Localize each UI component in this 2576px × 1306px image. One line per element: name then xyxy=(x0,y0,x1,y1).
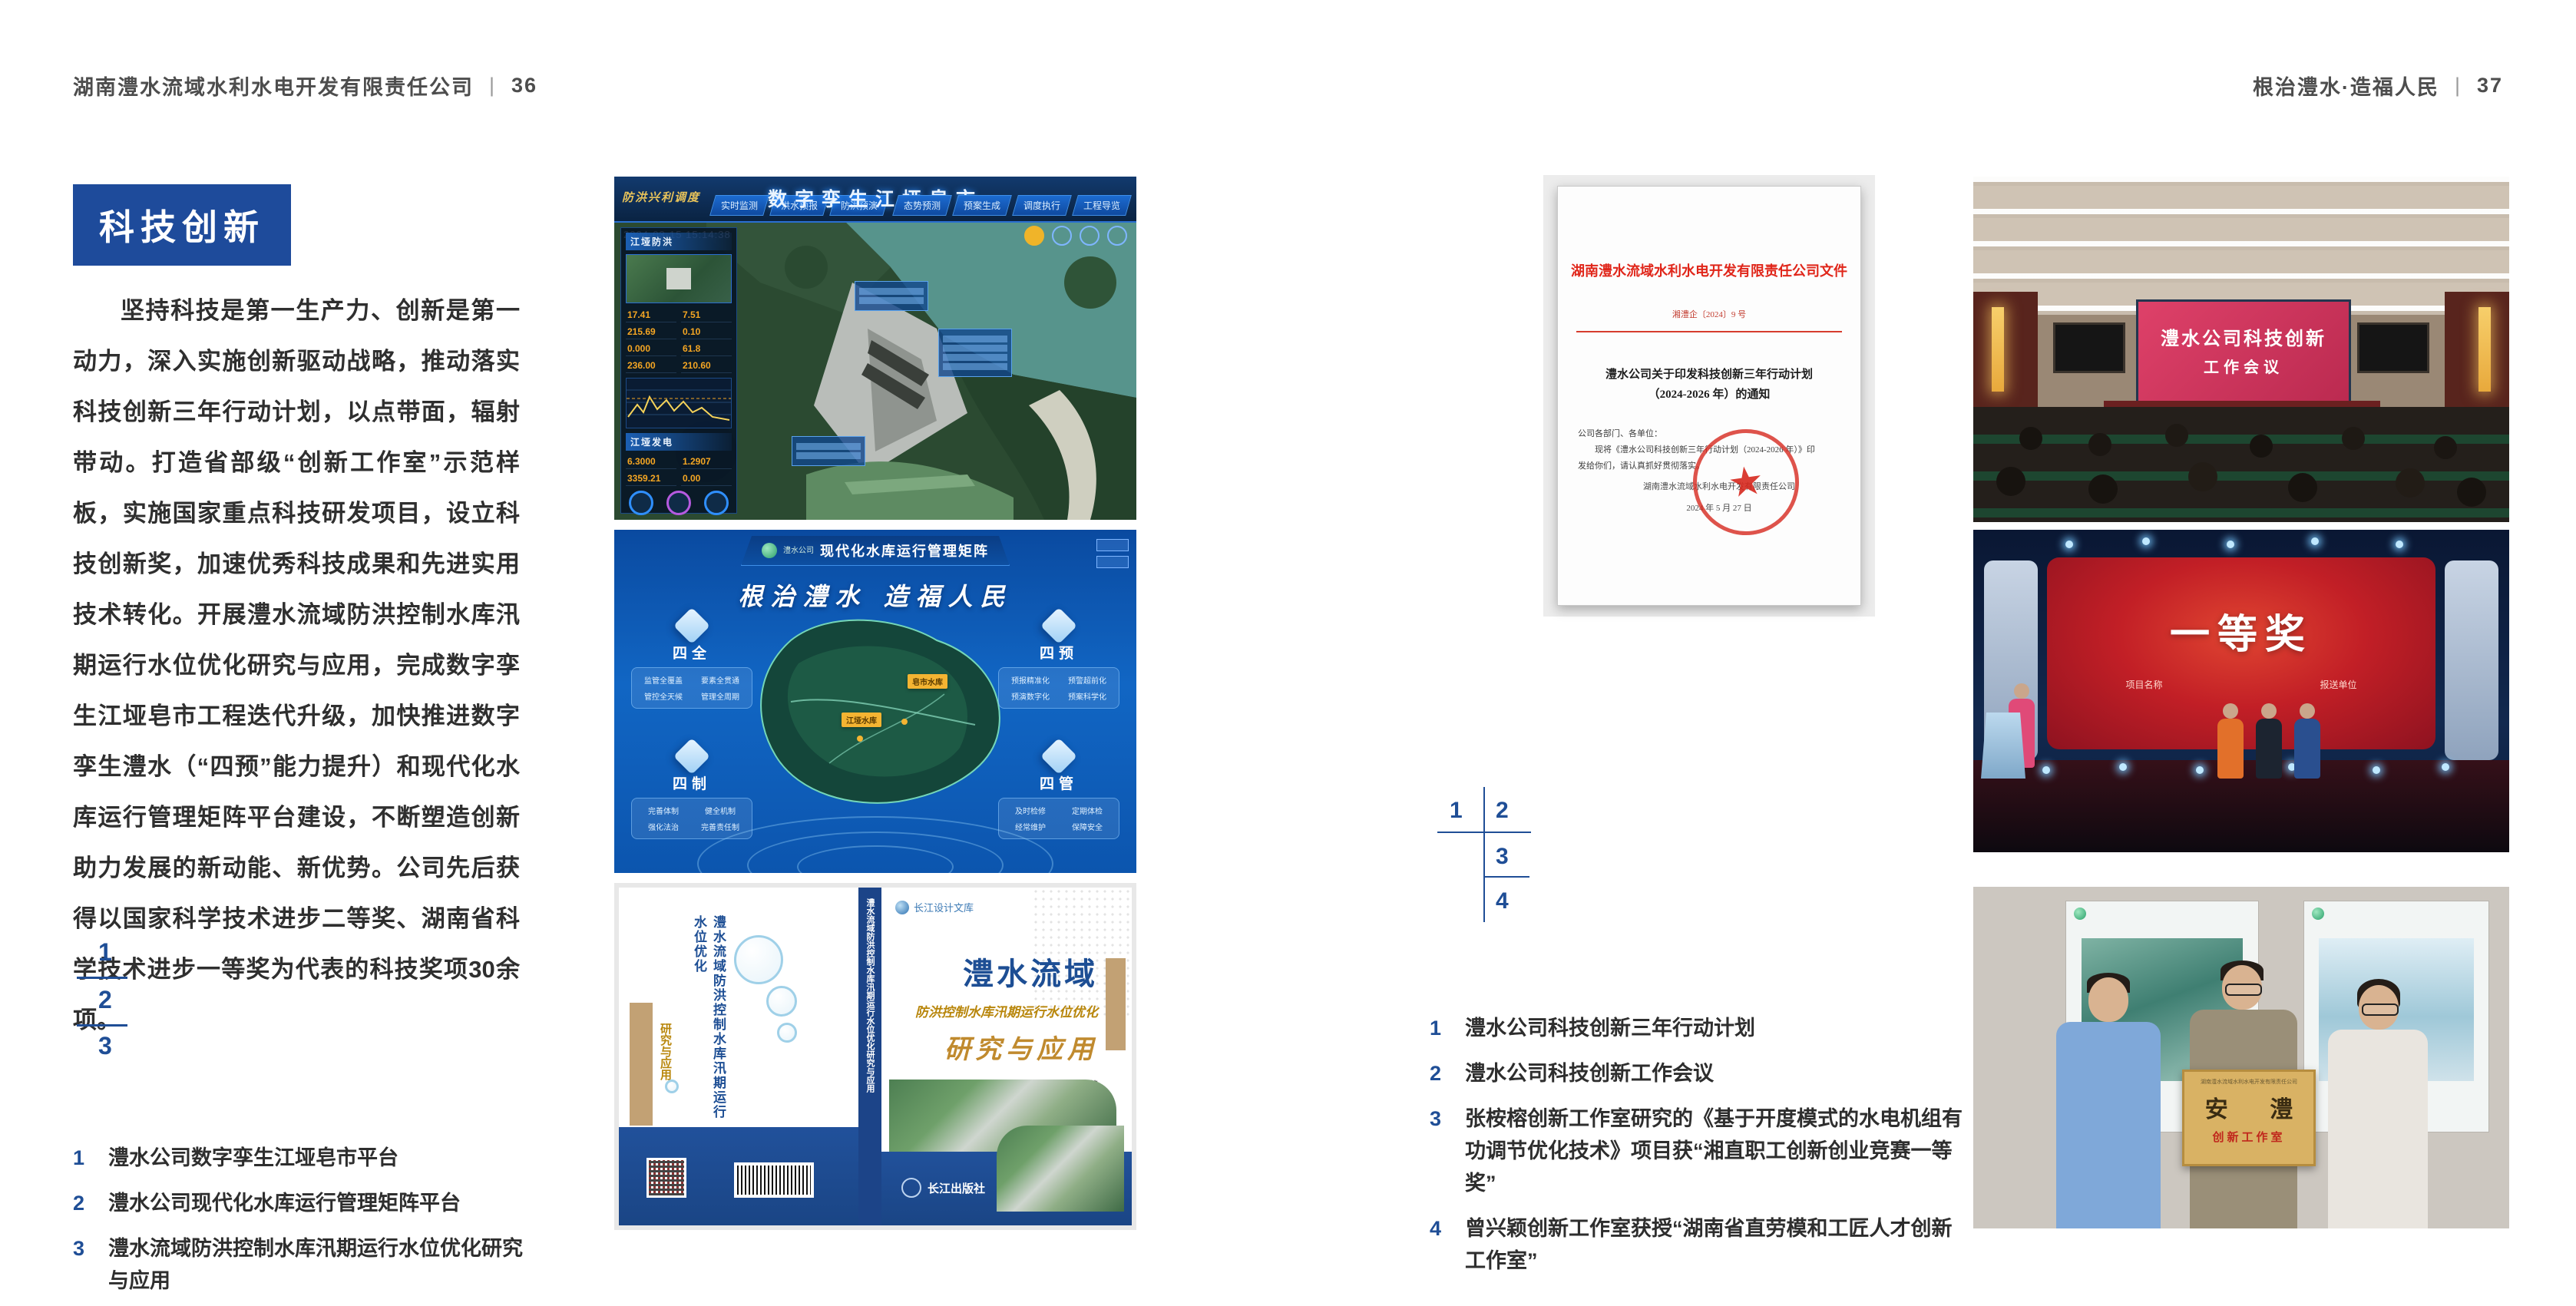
caption-row: 3 张桉榕创新工作室研究的《基于开度模式的水电机组有功调节优化技术》项目获“湘直… xyxy=(1430,1103,1972,1199)
stat-value: 210.60 xyxy=(681,359,732,373)
bubble-graphic xyxy=(665,1080,679,1093)
platform-header: 澧水公司 现代化水库运行管理矩阵 xyxy=(741,536,1010,566)
bubble-graphic xyxy=(766,986,797,1017)
group-item: 及时检修 xyxy=(1004,805,1057,816)
document-title: 湖南澧水流域水利水电开发有限责任公司文件 xyxy=(1558,260,1860,280)
subject-line: 澧水公司关于印发科技创新三年行动计划 xyxy=(1558,365,1860,385)
stage-spotlight xyxy=(2142,537,2150,545)
subject-line: （2024-2026 年）的通知 xyxy=(1558,385,1860,405)
photo-award-ceremony: 一等奖 项目名称 报送单位 xyxy=(1973,530,2509,852)
floor-light xyxy=(2042,766,2050,774)
figure-number: 2 xyxy=(98,986,112,1014)
audience-area xyxy=(1973,407,2509,522)
group-item: 管理全周期 xyxy=(693,690,747,702)
award-col-unit: 报送单位 xyxy=(2320,678,2356,691)
header-divider: | xyxy=(489,74,496,98)
book-back-cover: 研究与应用 澧水流域防洪控制水库汛期运行水位优化 xyxy=(619,888,858,1225)
poster-logo-icon xyxy=(2312,908,2324,920)
book-spine: 澧水流域防洪控制水库汛期运行水位优化研究与应用 xyxy=(858,888,881,1225)
stage-spotlight xyxy=(2311,537,2319,545)
figure-number: 1 xyxy=(98,938,112,967)
stat-value: 7.51 xyxy=(681,308,732,322)
awardee-blue xyxy=(2294,719,2320,779)
front-title-block: 澧水流域 防洪控制水库汛期运行水位优化 研究与应用 洪兴骏 沈坤民 鲁军 刘世军… xyxy=(898,949,1098,1091)
caption-number: 1 xyxy=(1430,1012,1441,1044)
caption-text: 张桉榕创新工作室研究的《基于开度模式的水电机组有功调节优化技术》项目获“湘直职工… xyxy=(1465,1107,1963,1195)
group-item: 完善体制 xyxy=(637,805,690,816)
award-title: 一等奖 xyxy=(2047,602,2435,660)
group-item: 预警超前化 xyxy=(1060,674,1114,686)
caption-row: 2 澧水公司科技创新工作会议 xyxy=(1430,1057,1972,1089)
caption-text: 澧水公司数字孪生江垭皂市平台 xyxy=(108,1146,398,1169)
locate-icon xyxy=(1080,226,1100,246)
droplet-icon xyxy=(673,607,710,644)
platform-button xyxy=(1096,539,1129,551)
tab-trend-forecast: 态势预测 xyxy=(892,195,952,216)
matrix-group-siquan: 四全 监管全覆盖 要素全贯通 管控全天候 管理全周期 xyxy=(631,613,752,709)
stat-value: 0.10 xyxy=(681,325,732,339)
platform-slogan: 根治澧水 造福人民 xyxy=(738,577,1012,613)
caption-row: 4 曾兴颖创新工作室获授“湖南省直劳模和工匠人才创新工作室” xyxy=(1430,1212,1972,1277)
platform-logo-text: 澧水公司 xyxy=(783,547,814,555)
stat-value: 236.00 xyxy=(626,359,676,373)
company-name: 湖南澧水流域水利水电开发有限责任公司 xyxy=(73,71,474,101)
gauge-icon xyxy=(666,491,691,515)
glasses-icon xyxy=(2225,984,2262,996)
wall-lamp xyxy=(1992,307,2004,392)
maintenance-icon xyxy=(1040,738,1077,775)
photo-studio-plaque: 湖南澧水流域水利水电开发有限责任公司 安 澧 创新工作室 xyxy=(1973,887,2509,1228)
dashboard-tabs-right: 态势预测 预案生成 调度执行 工程导览 xyxy=(895,195,1129,216)
data-callout xyxy=(792,436,865,466)
plaque-subtitle: 创新工作室 xyxy=(2184,1129,2313,1145)
water-level-chart xyxy=(626,378,732,428)
book-title-sub: 防洪控制水库汛期运行水位优化 xyxy=(898,1001,1098,1020)
slogan: 根治澧水·造福人民 xyxy=(2253,71,2439,101)
watershed-map xyxy=(745,610,1014,809)
index-divider xyxy=(77,977,127,979)
figure-book-cover: 研究与应用 澧水流域防洪控制水库汛期运行水位优化 澧水流域防洪控制水库汛期运行水… xyxy=(614,883,1136,1230)
audience-silhouettes xyxy=(1996,467,2025,496)
caption-number: 2 xyxy=(1430,1057,1441,1089)
turbine-gauges xyxy=(626,491,732,515)
front-ribbon xyxy=(1106,958,1126,1050)
figure-number: 3 xyxy=(98,1032,112,1060)
group-item: 管控全天候 xyxy=(637,690,690,702)
flood-panel-title: 江垭防洪 xyxy=(626,233,732,250)
side-display xyxy=(2357,322,2429,373)
caption-row: 3 澧水流域防洪控制水库汛期运行水位优化研究与应用 xyxy=(73,1232,534,1297)
wall-lamp xyxy=(2478,307,2491,392)
caption-text: 澧水公司科技创新工作会议 xyxy=(1465,1062,1714,1085)
stat-value: 215.69 xyxy=(626,325,676,339)
matrix-group-siguan: 四管 及时检修 定期体检 经常维护 保障安全 xyxy=(998,743,1119,839)
group-item: 预案科学化 xyxy=(1060,690,1114,702)
salutation: 公司各部门、各单位： xyxy=(1578,426,1839,442)
dashboard-left-panel: 江垭防洪 17.41 7.51 215.69 0.10 0.000 61.8 2… xyxy=(620,227,737,514)
index-divider xyxy=(77,1024,127,1027)
publisher-logo-icon xyxy=(901,1178,921,1198)
meeting-screen: 澧水公司科技创新 工作会议 xyxy=(2136,299,2351,404)
layers-icon xyxy=(1052,226,1072,246)
gauge-icon xyxy=(629,491,653,515)
section-title: 科技创新 xyxy=(73,184,291,266)
poster-logo-icon xyxy=(2074,908,2086,920)
bubble-graphic xyxy=(734,935,783,984)
figure-number: 4 xyxy=(1496,888,1509,914)
power-panel-title: 江垭发电 xyxy=(626,433,732,451)
figure-digital-twin-platform: 防洪兴利调度 实时监测 洪水预报 防洪预演 数字孪生江垭皂市 态势预测 预案生成… xyxy=(614,177,1136,520)
page-spread: 湖南澧水流域水利水电开发有限责任公司 | 36 根治澧水·造福人民 | 37 科… xyxy=(0,0,2576,1306)
side-display xyxy=(2053,322,2125,373)
bubble-graphic xyxy=(777,1023,797,1043)
forecast-icon xyxy=(1040,607,1077,644)
group-item: 定期体检 xyxy=(1060,805,1114,816)
glasses-icon xyxy=(2362,1003,2399,1016)
figure-number: 1 xyxy=(1450,798,1463,824)
tab-dispatch-execution: 调度执行 xyxy=(1012,195,1072,216)
dam-photo-small xyxy=(997,1126,1124,1212)
caption-row: 2 澧水公司现代化水库运行管理矩阵平台 xyxy=(73,1187,534,1219)
innovation-studio-plaque: 湖南澧水流域水利水电开发有限责任公司 安 澧 创新工作室 xyxy=(2182,1070,2316,1166)
data-callout xyxy=(855,281,928,311)
stat-value: 1.2907 xyxy=(681,455,732,469)
right-page-header: 根治澧水·造福人民 | 37 xyxy=(2253,71,2503,101)
page-number-right: 37 xyxy=(2477,74,2503,98)
publisher-name: 长江出版社 xyxy=(928,1180,985,1196)
stat-value: 6.3000 xyxy=(626,455,676,469)
dashboard-icon-row xyxy=(1024,226,1127,246)
platform-button xyxy=(1096,556,1129,568)
group-item: 强化法治 xyxy=(637,821,690,832)
figure-number: 3 xyxy=(1496,844,1509,870)
front-bottom-band: 长江出版社 xyxy=(881,1152,1132,1225)
right-captions: 1 澧水公司科技创新三年行动计划 2 澧水公司科技创新工作会议 3 张桉榕创新工… xyxy=(1430,1012,1972,1290)
floor-light xyxy=(2196,766,2204,774)
qr-code xyxy=(646,1158,686,1198)
caption-number: 3 xyxy=(73,1232,84,1265)
group-item: 保障安全 xyxy=(1060,821,1114,832)
caption-number: 4 xyxy=(1430,1212,1441,1245)
spine-title: 澧水流域防洪控制水库汛期运行水位优化研究与应用 xyxy=(864,898,876,1129)
group-item: 健全机制 xyxy=(693,805,747,816)
stage-side-panel xyxy=(2445,560,2498,760)
dashboard-corner-label: 防洪兴利调度 xyxy=(622,189,700,205)
back-ribbon xyxy=(630,1003,653,1126)
book-front-cover: 长江设计文库 澧水流域 防洪控制水库汛期运行水位优化 研究与应用 洪兴骏 沈坤民… xyxy=(881,888,1132,1225)
power-stats: 6.3000 1.2907 3359.21 0.00 xyxy=(626,455,732,486)
group-item: 监管全覆盖 xyxy=(637,674,690,686)
figure-official-document: 湖南澧水流域水利水电开发有限责任公司文件 湘澧企〔2024〕9 号 澧水公司关于… xyxy=(1543,175,1875,617)
stat-value: 0.00 xyxy=(681,471,732,486)
dam-thumbnail xyxy=(626,254,732,303)
plaque-header: 湖南澧水流域水利水电开发有限责任公司 xyxy=(2184,1078,2313,1086)
settings-icon xyxy=(1107,226,1127,246)
book-title-main: 澧水流域 xyxy=(898,949,1098,994)
document-red-rule xyxy=(1576,331,1843,332)
platform-title: 现代化水库运行管理矩阵 xyxy=(820,541,989,560)
stage-spotlight xyxy=(2396,541,2403,548)
flood-stats: 17.41 7.51 215.69 0.10 0.000 61.8 236.00… xyxy=(626,308,732,373)
group-item: 经常维护 xyxy=(1004,821,1057,832)
right-figure-number-index: 1 2 3 4 xyxy=(1434,787,1536,925)
stat-value: 3359.21 xyxy=(626,471,676,486)
tab-realtime-monitoring: 实时监测 xyxy=(709,195,769,216)
publisher-globe-icon xyxy=(895,901,909,914)
index-divider xyxy=(1483,787,1485,922)
matrix-group-sizhi: 四制 完善体制 健全机制 强化法治 完善责任制 xyxy=(631,743,752,839)
document-page: 湖南澧水流域水利水电开发有限责任公司文件 湘澧企〔2024〕9 号 澧水公司关于… xyxy=(1557,186,1861,606)
user-icon xyxy=(1024,226,1044,246)
audience-silhouettes xyxy=(2019,427,2042,450)
plaque-title: 安 澧 xyxy=(2184,1090,2313,1124)
caption-number: 3 xyxy=(1430,1103,1441,1135)
tab-plan-generation: 预案生成 xyxy=(952,195,1012,216)
map-label-zaoshi: 皂市水库 xyxy=(908,674,947,689)
caption-text: 澧水公司现代化水库运行管理矩阵平台 xyxy=(108,1192,461,1215)
caption-text: 曾兴颖创新工作室获授“湖南省直劳模和工匠人才创新工作室” xyxy=(1465,1217,1953,1272)
left-captions: 1 澧水公司数字孪生江垭皂市平台 2 澧水公司现代化水库运行管理矩阵平台 3 澧… xyxy=(73,1142,534,1306)
group-item: 要素全贯通 xyxy=(693,674,747,686)
person-left-blue-polo xyxy=(2056,1022,2161,1228)
caption-text: 澧水公司科技创新三年行动计划 xyxy=(1465,1017,1755,1040)
barcode xyxy=(734,1162,814,1198)
award-col-project: 项目名称 xyxy=(2125,678,2162,691)
body-paragraph: 坚持科技是第一生产力、创新是第一动力，深入实施创新驱动战略，推动落实科技创新三年… xyxy=(73,286,520,1046)
left-page-header: 湖南澧水流域水利水电开发有限责任公司 | 36 xyxy=(73,71,537,101)
index-divider xyxy=(1437,832,1531,833)
group-items: 完善体制 健全机制 强化法治 完善责任制 xyxy=(631,798,752,839)
awardee-orange xyxy=(2217,719,2244,779)
group-title: 四预 xyxy=(998,642,1119,663)
institution-icon xyxy=(673,738,710,775)
host-podium xyxy=(1981,713,2025,779)
series-logo: 长江设计文库 xyxy=(895,900,974,914)
back-bottom-band xyxy=(619,1127,858,1225)
dashboard-top-bar: 防洪兴利调度 实时监测 洪水预报 防洪预演 数字孪生江垭皂市 态势预测 预案生成… xyxy=(614,177,1136,223)
figure-reservoir-matrix-platform: 澧水公司 现代化水库运行管理矩阵 根治澧水 造福人民 皂市水库 江垭水库 四全 … xyxy=(614,530,1136,873)
person-head xyxy=(2088,977,2128,1022)
group-title: 四制 xyxy=(631,772,752,793)
document-subject: 澧水公司关于印发科技创新三年行动计划 （2024-2026 年）的通知 xyxy=(1558,365,1860,405)
stat-value: 61.8 xyxy=(681,342,732,356)
stat-value: 17.41 xyxy=(626,308,676,322)
back-title: 澧水流域防洪控制水库汛期运行水位优化 xyxy=(689,915,728,1122)
series-name: 长江设计文库 xyxy=(914,900,974,914)
index-divider xyxy=(1483,876,1529,878)
group-items: 预报精准化 预警超前化 预演数字化 预案科学化 xyxy=(998,667,1119,709)
book-title-tail: 研究与应用 xyxy=(898,1028,1098,1066)
caption-text: 澧水流域防洪控制水库汛期运行水位优化研究与应用 xyxy=(108,1237,523,1292)
figure-number: 2 xyxy=(1496,798,1509,824)
floor-light xyxy=(2119,763,2127,771)
document-number: 湘澧企〔2024〕9 号 xyxy=(1558,308,1860,320)
star-icon: ★ xyxy=(1725,457,1767,508)
caption-number: 1 xyxy=(73,1142,84,1174)
publisher-block: 长江出版社 xyxy=(901,1178,985,1198)
caption-number: 2 xyxy=(73,1187,84,1219)
header-divider: | xyxy=(2455,74,2462,98)
tab-project-tour: 工程导览 xyxy=(1072,195,1132,216)
gauge-icon xyxy=(704,491,729,515)
group-title: 四管 xyxy=(998,772,1119,793)
award-columns: 项目名称 报送单位 xyxy=(2047,678,2435,691)
group-item: 完善责任制 xyxy=(693,821,747,832)
caption-row: 1 澧水公司数字孪生江垭皂市平台 xyxy=(73,1142,534,1174)
matrix-group-siyu: 四预 预报精准化 预警超前化 预演数字化 预案科学化 xyxy=(998,613,1119,709)
group-item: 预报精准化 xyxy=(1004,674,1057,686)
person-right-white-tee xyxy=(2328,1030,2428,1228)
stat-value: 0.000 xyxy=(626,342,676,356)
group-item: 预演数字化 xyxy=(1004,690,1057,702)
data-callout xyxy=(938,329,1012,377)
map-label-jiangya: 江垭水库 xyxy=(842,713,881,727)
caption-row: 1 澧水公司科技创新三年行动计划 xyxy=(1430,1012,1972,1044)
group-items: 及时检修 定期体检 经常维护 保障安全 xyxy=(998,798,1119,839)
screen-title-line2: 工作会议 xyxy=(2138,355,2349,377)
company-logo-icon xyxy=(762,543,777,558)
group-title: 四全 xyxy=(631,642,752,663)
floor-light xyxy=(2442,763,2449,771)
presenter-suit xyxy=(2256,719,2282,779)
page-number-left: 36 xyxy=(511,74,537,98)
stage-spotlight xyxy=(2227,541,2234,548)
group-items: 监管全覆盖 要素全贯通 管控全天候 管理全周期 xyxy=(631,667,752,709)
floor-light xyxy=(2373,766,2380,774)
screen-title-line1: 澧水公司科技创新 xyxy=(2138,323,2349,350)
stage-spotlight xyxy=(2065,541,2073,548)
photo-innovation-meeting: 澧水公司科技创新 工作会议 xyxy=(1973,177,2509,522)
